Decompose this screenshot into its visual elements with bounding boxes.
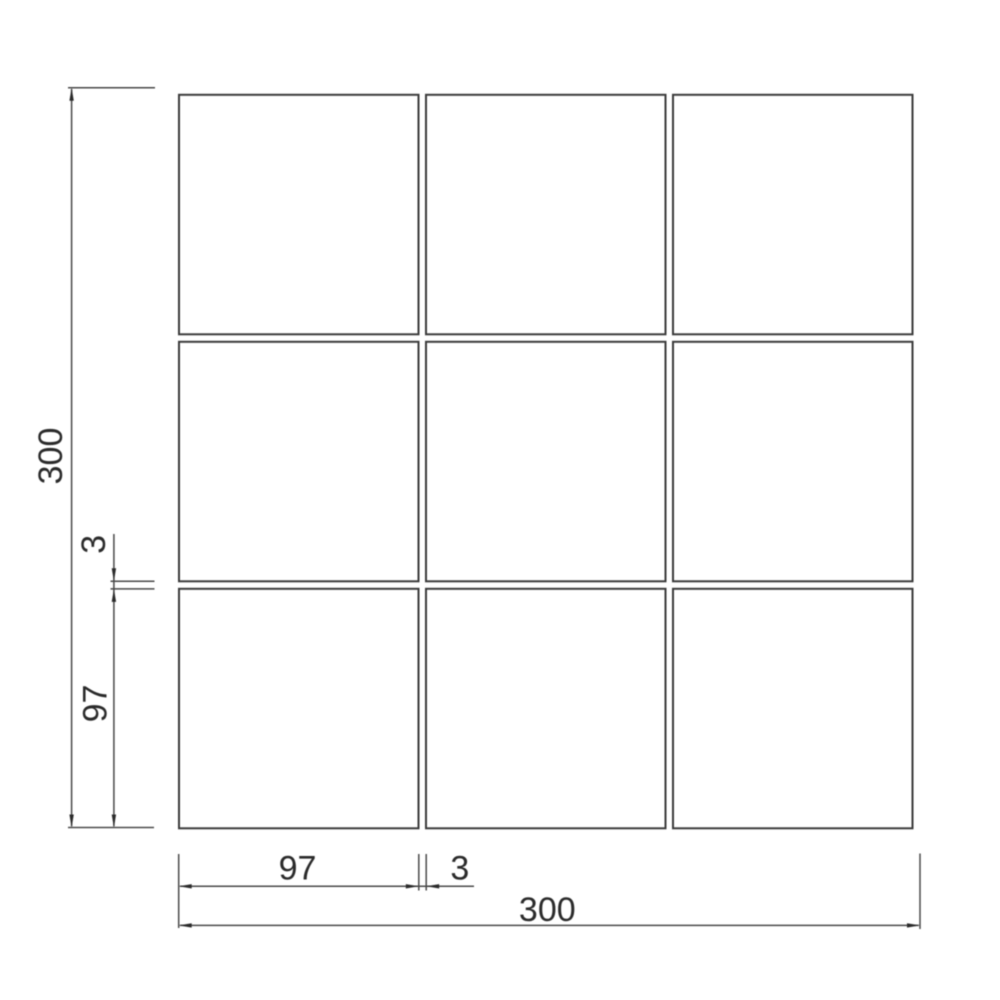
svg-text:300: 300 xyxy=(519,891,576,929)
svg-text:97: 97 xyxy=(77,685,115,723)
svg-text:97: 97 xyxy=(279,850,317,888)
svg-text:3: 3 xyxy=(75,535,113,554)
svg-text:3: 3 xyxy=(450,850,469,888)
svg-text:300: 300 xyxy=(32,428,70,485)
